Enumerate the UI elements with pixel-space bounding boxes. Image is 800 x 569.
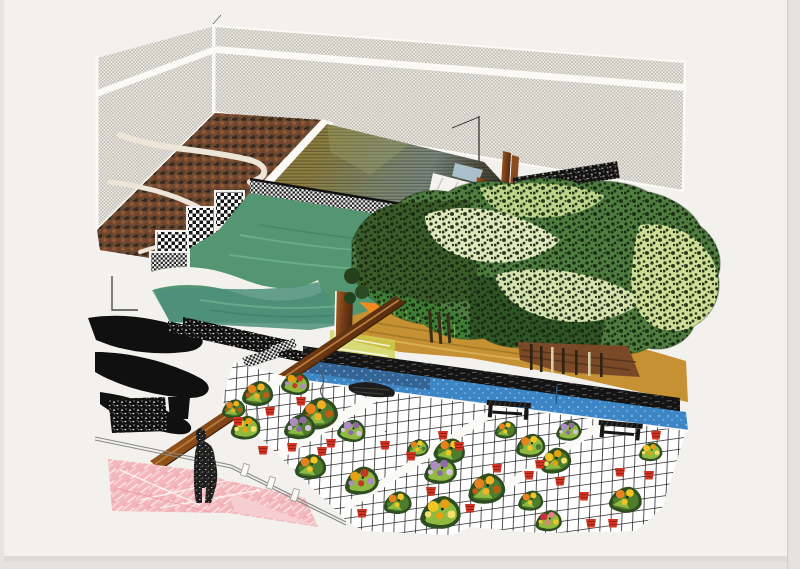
red-flower-pot [579,492,589,501]
red-flower-pot [406,452,416,461]
red-flower-pot [426,487,436,496]
red-flower-pot [644,471,654,480]
post-edge-highlight [335,291,336,336]
red-flower-pot [317,447,327,456]
red-flower-pot [555,477,565,486]
red-flower-pot [265,407,275,416]
pompom-3 [344,292,356,304]
fence-end-post [96,56,99,231]
garden-collage-artwork [0,0,800,569]
red-flower-pot [357,509,367,518]
red-flower-pot [296,397,306,406]
red-flower-pot [535,460,545,469]
red-flower-pot [326,439,336,448]
red-flower-pot [380,441,390,450]
red-flower-pot [465,504,475,513]
black-block [168,397,190,419]
red-flower-pot [233,417,243,426]
pompom-2 [355,285,369,299]
red-flower-pot [492,464,502,473]
red-flower-pot [524,471,534,480]
red-flower-pot [258,446,268,455]
paper-right-edge [787,0,788,569]
speckle-mound [108,397,168,433]
red-flower-pot [438,431,448,440]
artwork-photo [0,0,800,569]
paper-bottom-shadow [4,556,788,562]
red-flower-pot [615,468,625,477]
red-flower-pot [608,519,618,528]
red-flower-pot [586,519,596,528]
lap-pool-seam [556,386,557,404]
red-flower-pot [454,442,464,451]
red-flower-pot [651,431,661,440]
red-flower-pot [287,443,297,452]
pompom-1 [344,268,360,284]
fence-corner-post [212,24,216,114]
